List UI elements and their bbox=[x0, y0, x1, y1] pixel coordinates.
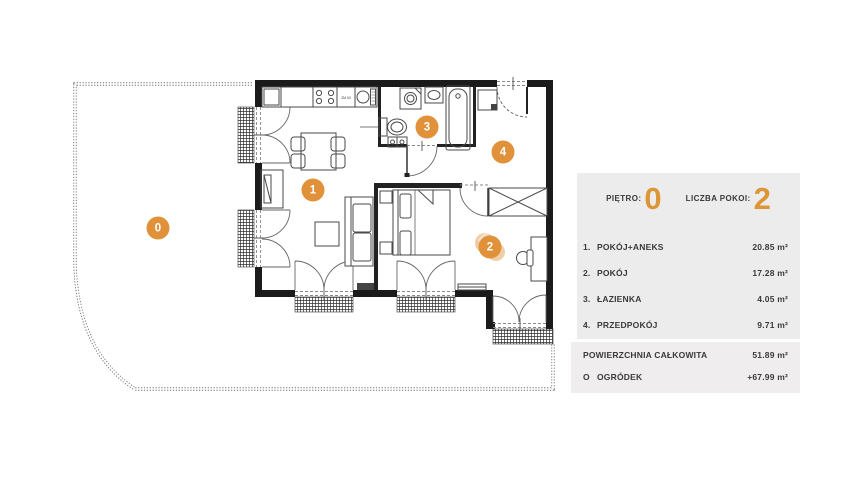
floor-indicator: PIĘTRO: 0 bbox=[606, 185, 662, 212]
kitchen-counter bbox=[262, 87, 377, 107]
room-badge-hall: 4 bbox=[492, 141, 515, 164]
dishwasher-label: ZM 60 bbox=[341, 96, 351, 100]
room-badge-living: 1 bbox=[302, 179, 325, 202]
room-number: 3. bbox=[583, 294, 597, 304]
room-list-item: 1. POKÓJ+ANEKS 20.85 m² bbox=[577, 242, 800, 252]
rooms-label: LICZBA POKOI: bbox=[686, 194, 751, 203]
stove bbox=[316, 90, 333, 103]
info-panel: PIĘTRO: 0 LICZBA POKOI: 2 1. POKÓJ+ANEKS… bbox=[577, 173, 800, 339]
room-name: POKÓJ+ANEKS bbox=[597, 242, 752, 252]
summary-panel: POWIERZCHNIA CAŁKOWITA 51.89 m² O OGRÓDE… bbox=[571, 342, 800, 393]
washing-machine bbox=[400, 88, 421, 109]
floorplan-card: ZM 60 bbox=[0, 0, 860, 483]
room-number: 2. bbox=[583, 268, 597, 278]
hall-cabinet bbox=[478, 90, 497, 110]
wardrobe bbox=[489, 188, 547, 216]
bed bbox=[380, 190, 450, 255]
coffee-table bbox=[315, 222, 339, 246]
room-area: 17.28 m² bbox=[752, 268, 788, 278]
toilet bbox=[360, 118, 407, 136]
room-area: 4.05 m² bbox=[757, 294, 788, 304]
fridge bbox=[264, 89, 279, 105]
sofa bbox=[345, 197, 373, 266]
summary-prefix: O bbox=[583, 372, 597, 382]
room-list-item: 4. PRZEDPOKÓJ 9.71 m² bbox=[577, 320, 800, 330]
summary-area: 51.89 m² bbox=[752, 350, 788, 360]
summary-area: +67.99 m² bbox=[747, 372, 788, 382]
room-list: 1. POKÓJ+ANEKS 20.85 m² 2. POKÓJ 17.28 m… bbox=[577, 242, 800, 330]
room-list-item: 2. POKÓJ 17.28 m² bbox=[577, 268, 800, 278]
bathroom-sink bbox=[425, 87, 443, 103]
room-badge-garden: 0 bbox=[147, 217, 170, 240]
summary-item-garden: O OGRÓDEK +67.99 m² bbox=[571, 372, 800, 382]
rooms-value: 2 bbox=[754, 185, 771, 212]
rooms-indicator: LICZBA POKOI: 2 bbox=[686, 185, 771, 212]
summary-list: POWIERZCHNIA CAŁKOWITA 51.89 m² O OGRÓDE… bbox=[571, 342, 800, 382]
room-area: 20.85 m² bbox=[752, 242, 788, 252]
summary-item-total: POWIERZCHNIA CAŁKOWITA 51.89 m² bbox=[571, 350, 800, 360]
tv-stand bbox=[261, 170, 283, 208]
room-list-item: 3. ŁAZIENKA 4.05 m² bbox=[577, 294, 800, 304]
room-badge-bathroom: 3 bbox=[416, 116, 439, 139]
room-number: 4. bbox=[583, 320, 597, 330]
room-area: 9.71 m² bbox=[757, 320, 788, 330]
dining-set bbox=[291, 133, 345, 170]
desk-and-chair bbox=[517, 237, 548, 281]
kitchen-sink bbox=[357, 89, 376, 105]
panel-header: PIĘTRO: 0 LICZBA POKOI: 2 bbox=[577, 173, 800, 212]
bathtub bbox=[446, 86, 470, 150]
room-name: PRZEDPOKÓJ bbox=[597, 320, 757, 330]
summary-name: POWIERZCHNIA CAŁKOWITA bbox=[583, 350, 752, 360]
floor-label: PIĘTRO: bbox=[606, 194, 641, 203]
room-name: ŁAZIENKA bbox=[597, 294, 757, 304]
room-badge-bedroom: 2 bbox=[479, 236, 502, 259]
summary-name: OGRÓDEK bbox=[597, 372, 747, 382]
room-name: POKÓJ bbox=[597, 268, 752, 278]
room-number: 1. bbox=[583, 242, 597, 252]
floor-value: 0 bbox=[644, 185, 661, 212]
